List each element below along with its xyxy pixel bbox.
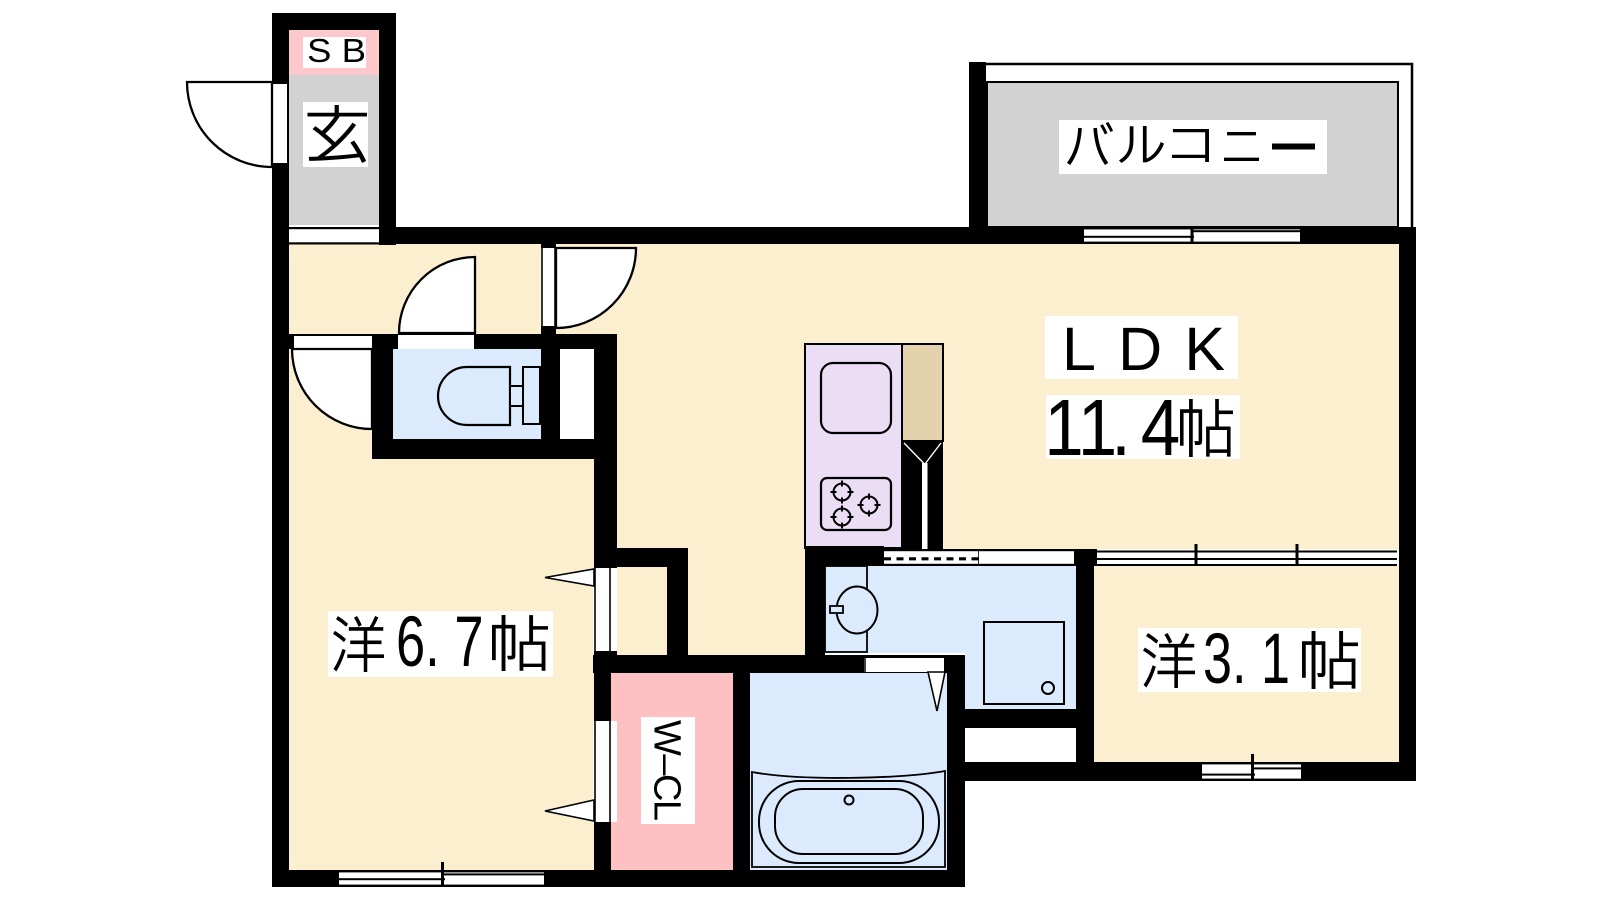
svg-text:6. 7: 6. 7	[396, 603, 484, 682]
svg-text:LDK: LDK	[1062, 315, 1225, 383]
svg-text:.: .	[1111, 383, 1131, 472]
svg-text:4: 4	[1141, 383, 1180, 472]
svg-text:W–CL: W–CL	[646, 720, 688, 821]
svg-text:S B: S B	[307, 32, 366, 69]
svg-text:3. 1: 3. 1	[1203, 620, 1290, 699]
